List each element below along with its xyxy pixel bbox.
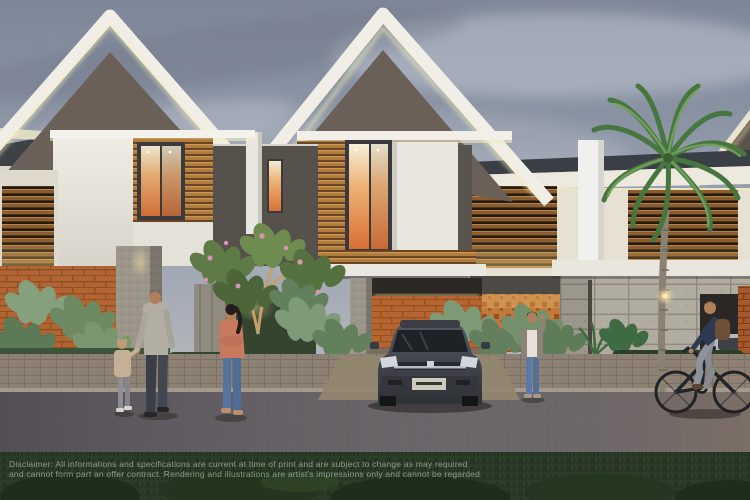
disclaimer: Disclaimer: All informations and specifi… [9,460,569,479]
lit-window [345,140,392,253]
architectural-rendering: Disclaimer: All informations and specifi… [0,0,750,500]
disclaimer-line-2: and cannot form part an offer contract. … [9,470,569,480]
backpack [715,319,730,340]
scene-svg [0,0,750,500]
windshield [392,330,468,352]
lit-window [137,142,185,220]
sliding-panel [392,142,458,254]
car-badge [427,361,434,367]
